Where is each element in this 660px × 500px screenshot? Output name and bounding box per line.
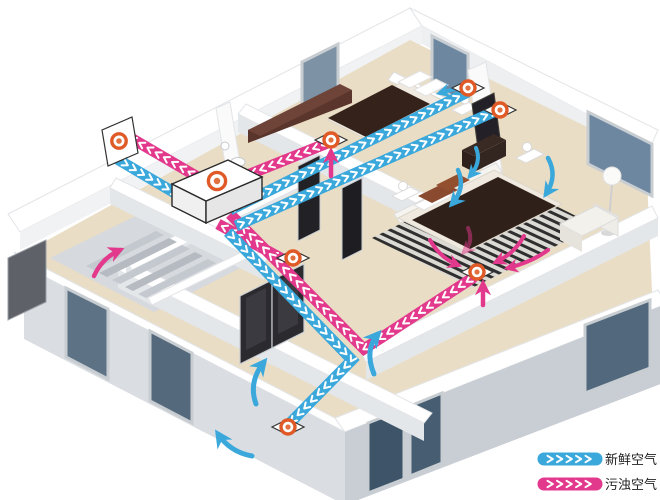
fan-hub	[290, 255, 295, 260]
fan-hub	[214, 178, 220, 184]
sink	[221, 142, 229, 150]
legend-fresh-label: 新鲜空气	[605, 452, 657, 468]
fan-hub	[116, 138, 122, 144]
fan-hub	[285, 424, 290, 429]
ventilation-diagram: 新鲜空气 污浊空气	[0, 0, 660, 500]
floor-lamp-icon	[603, 167, 621, 185]
hall-door-leaf	[342, 178, 362, 260]
table-lamp-icon	[523, 143, 532, 152]
floorplan-canvas: 新鲜空气 污浊空气	[0, 0, 660, 500]
fan-hub	[465, 85, 470, 90]
fan-hub	[474, 269, 479, 274]
fan-hub	[497, 107, 502, 112]
fan-hub	[328, 137, 333, 142]
legend-exhaust-label: 污浊空气	[605, 477, 657, 493]
legend: 新鲜空气 污浊空气	[544, 452, 657, 493]
table-lamp-icon	[399, 182, 408, 191]
living-door-panel	[246, 288, 266, 350]
